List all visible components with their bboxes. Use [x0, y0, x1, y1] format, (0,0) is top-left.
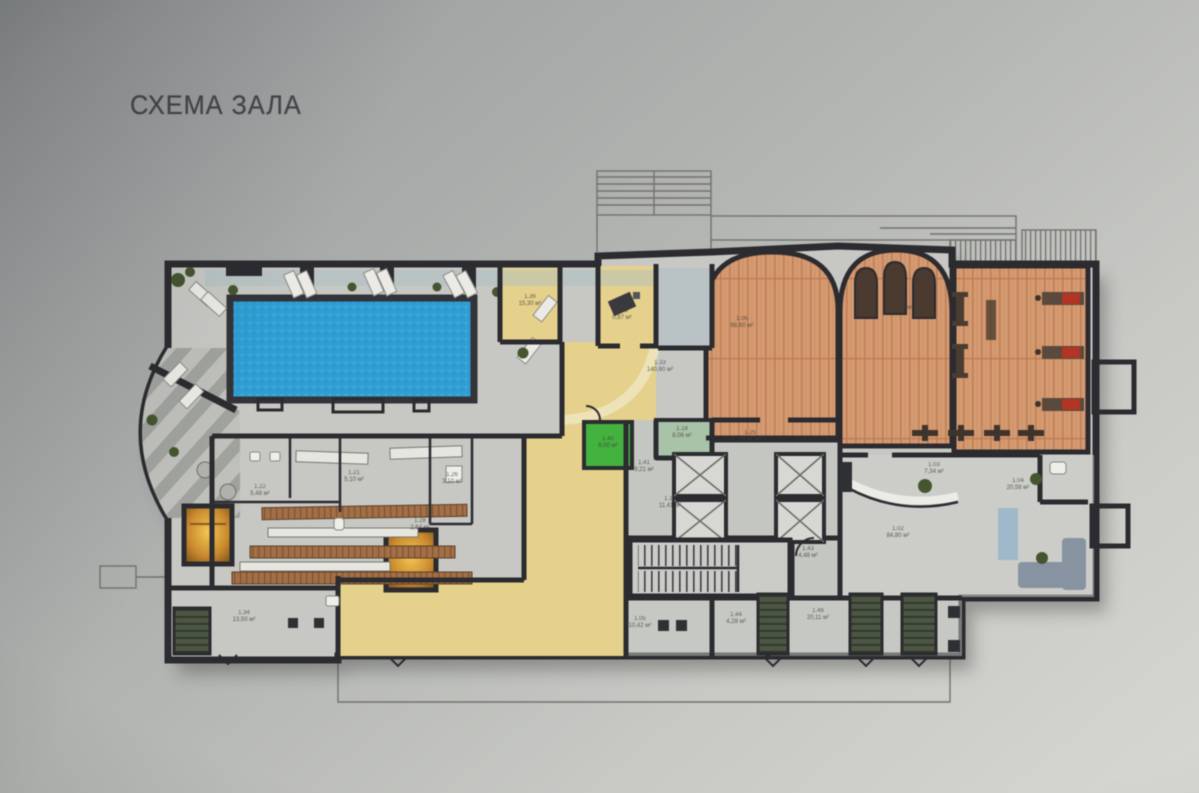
floor-plan-drawing	[0, 0, 1199, 793]
wood-rooms	[706, 250, 1088, 452]
blue-mat	[998, 508, 1018, 560]
plan-scene: СХЕМА ЗАЛА	[0, 0, 1199, 793]
grey-blue-room	[658, 268, 712, 346]
floor-plan-photo: СХЕМА ЗАЛА	[0, 0, 1199, 793]
main-staircase	[630, 540, 790, 596]
sauna-left	[184, 506, 232, 564]
swimming-pool	[230, 298, 474, 400]
